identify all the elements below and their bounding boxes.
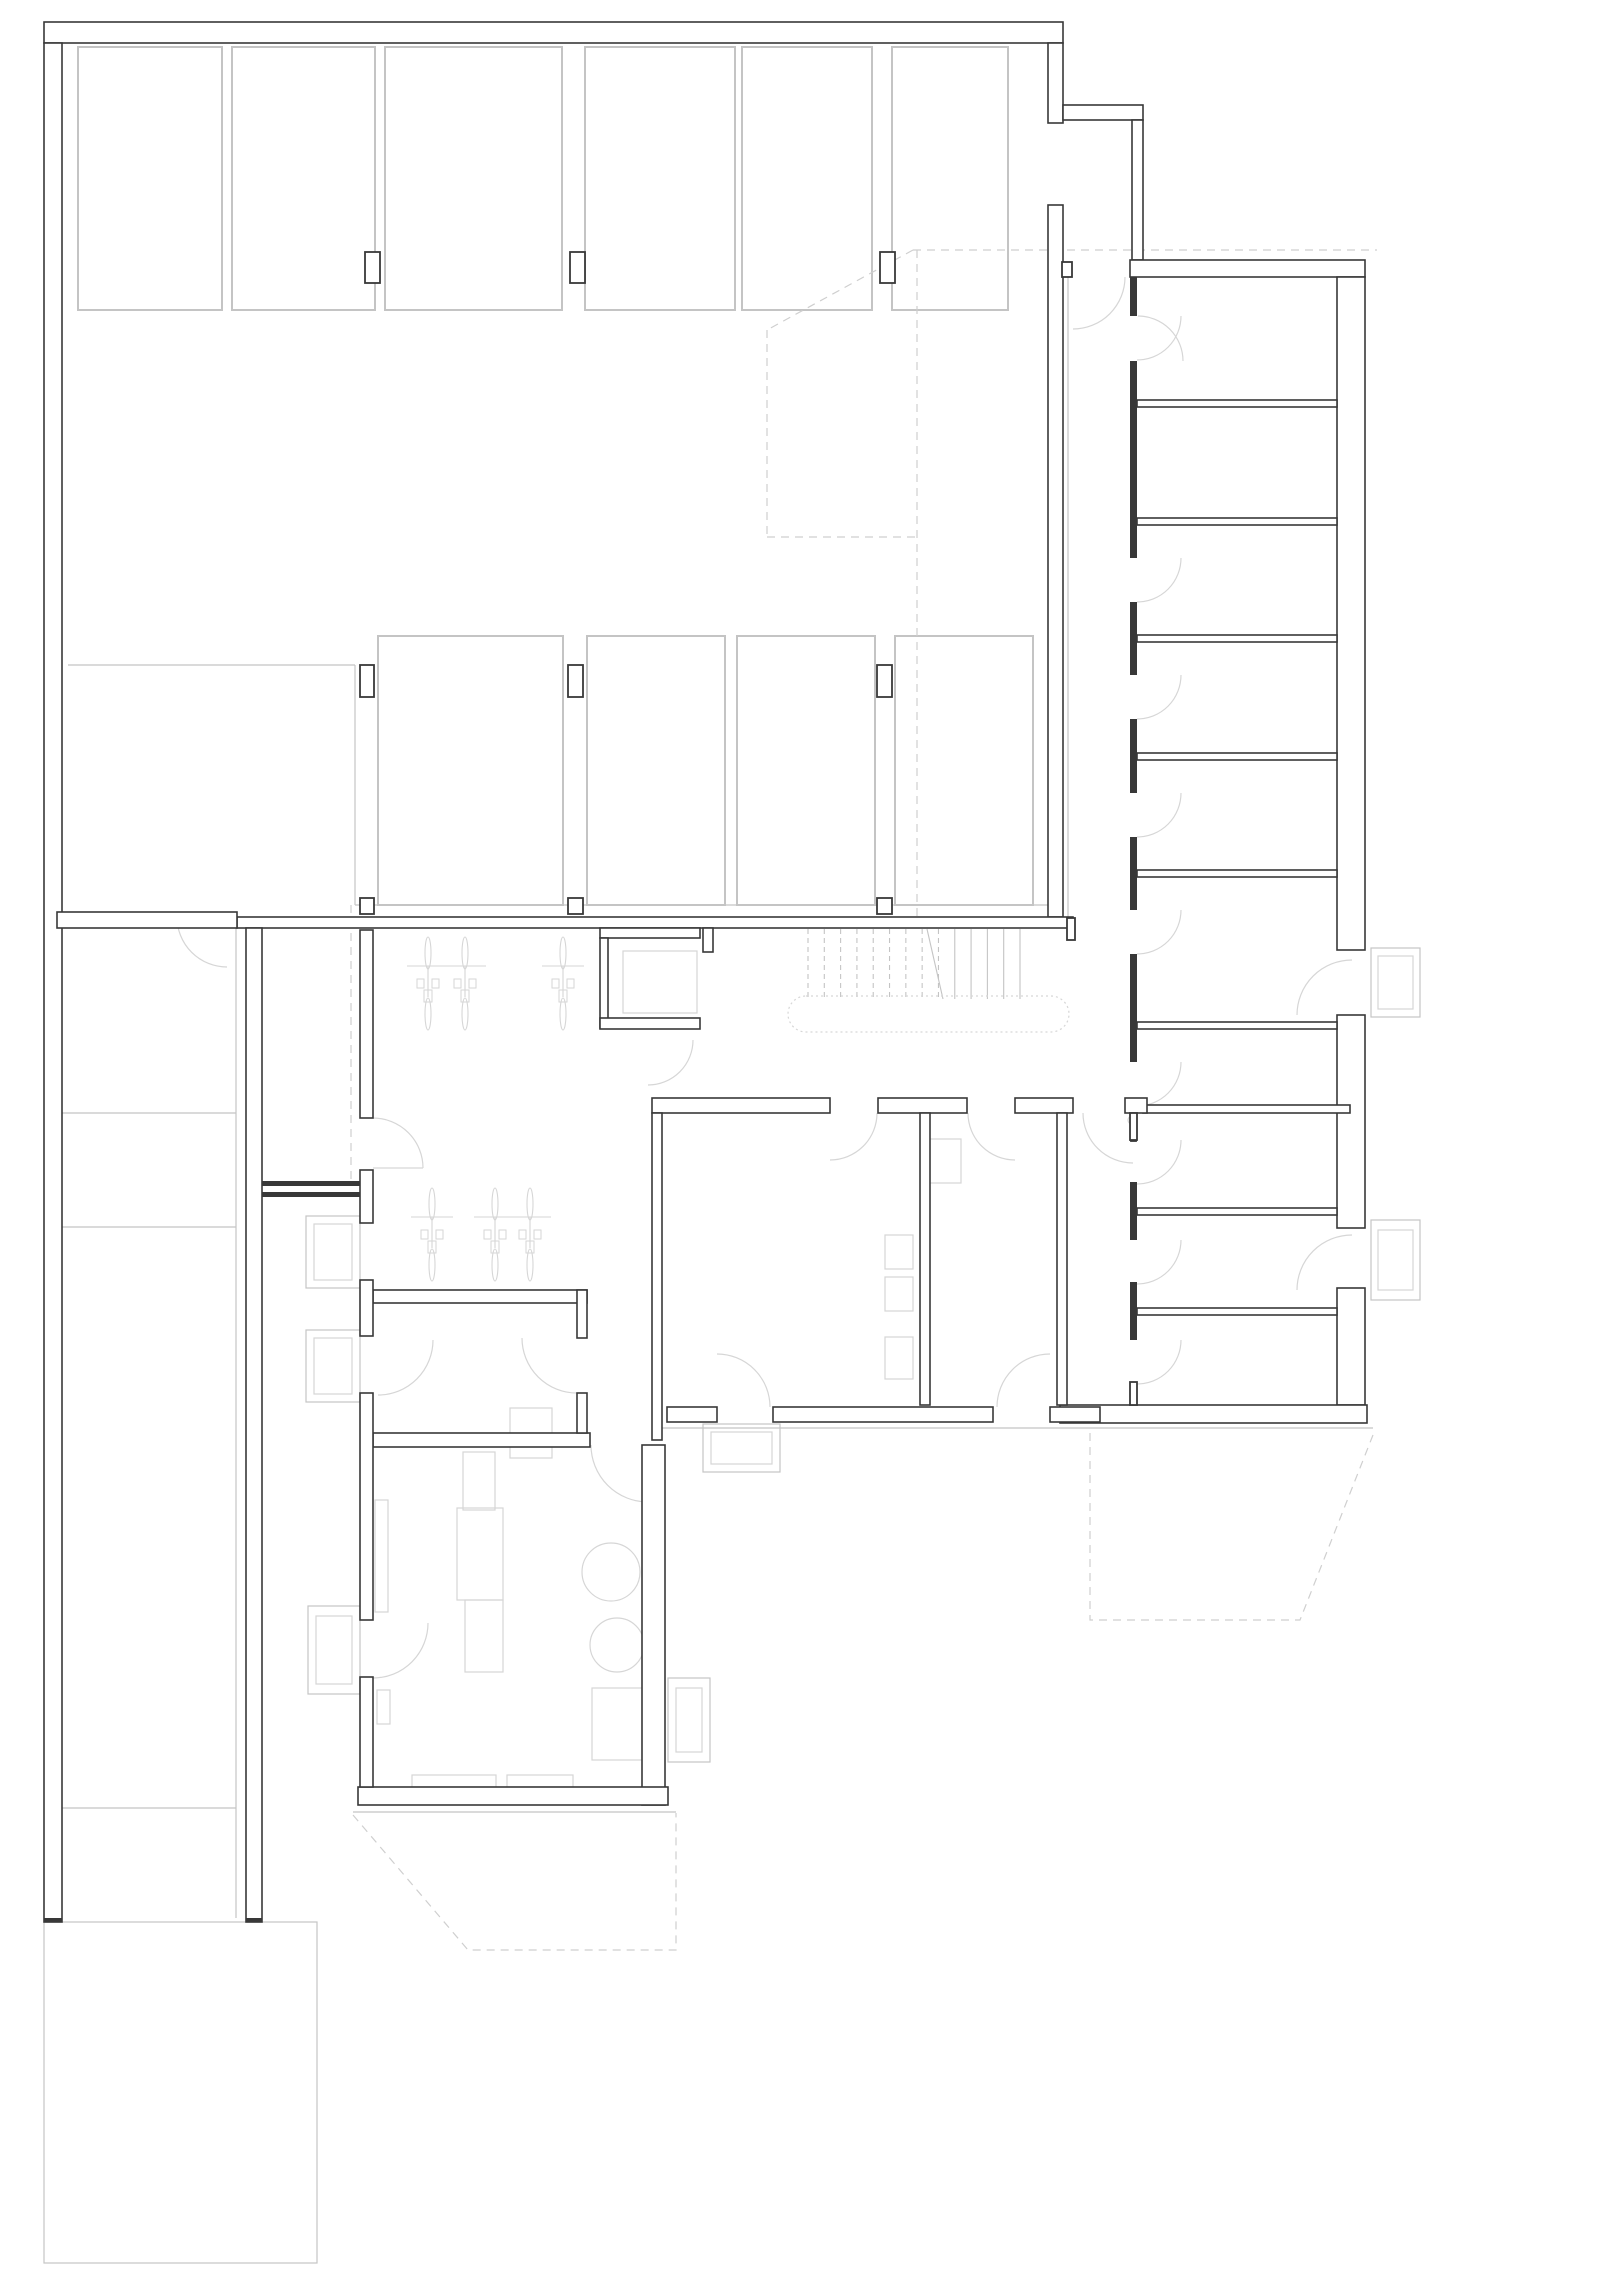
fixture (457, 1508, 503, 1600)
door-swing-arc (373, 1623, 428, 1678)
bike-pedal-right (499, 1230, 506, 1239)
fixture (314, 1224, 352, 1280)
wall (1015, 1098, 1073, 1113)
column (360, 898, 374, 914)
parking-stall (78, 47, 222, 310)
door-swing-arc (1073, 277, 1125, 329)
fixture (314, 1338, 352, 1394)
parking-stall (895, 636, 1033, 905)
fixture (463, 1452, 495, 1510)
bike-pedal-right (432, 979, 439, 988)
fixture (885, 1337, 913, 1379)
bike-rear-wheel (462, 998, 468, 1030)
parking-stall (232, 47, 375, 310)
bike-front-wheel (492, 1188, 498, 1220)
column (1130, 277, 1137, 316)
column (262, 1192, 360, 1197)
wall (652, 1113, 662, 1440)
column (365, 252, 380, 283)
door-swing-arc (1138, 316, 1183, 361)
column (1130, 1382, 1137, 1405)
door-swing-arc (717, 1354, 770, 1407)
door-swing-arc (1137, 1240, 1181, 1284)
fixture (377, 1690, 390, 1724)
wall (1132, 120, 1143, 260)
floor-plan-drawing (0, 0, 1600, 2285)
wall (358, 1787, 668, 1805)
wall (44, 43, 62, 1922)
door-swing-arc (1137, 316, 1181, 360)
double-walls-group (44, 22, 1367, 1922)
bike-pedal-left (454, 979, 461, 988)
stair-cut-line (927, 929, 943, 999)
column (44, 1918, 62, 1922)
fixture (1378, 1230, 1413, 1290)
fixture (465, 1600, 503, 1672)
column (1067, 918, 1075, 940)
wall (246, 928, 262, 1922)
bicycle-symbols-group (407, 937, 584, 1281)
column (1130, 837, 1137, 910)
door-swing-arc (648, 1040, 693, 1085)
staircase-group (788, 929, 1069, 1032)
fixture (676, 1688, 702, 1752)
door-swing-arc (1137, 1340, 1181, 1384)
wall (642, 1445, 665, 1805)
fixture (507, 1775, 573, 1787)
parking-stall (587, 636, 725, 905)
wall (57, 912, 237, 928)
bicycle-symbol (407, 937, 449, 1030)
parking-stall (737, 636, 875, 905)
wall (1137, 753, 1337, 760)
column (877, 898, 892, 914)
bike-pedal-right (567, 979, 574, 988)
wall (360, 1393, 373, 1620)
door-swing-arc (1137, 1140, 1181, 1184)
fixture (929, 1139, 961, 1183)
column (1130, 719, 1137, 793)
door-swing-arc (1137, 675, 1181, 719)
wall (1143, 1105, 1350, 1113)
fixture (885, 1277, 913, 1311)
wall (1137, 635, 1337, 642)
column (880, 252, 895, 283)
bike-pedal-left (519, 1230, 526, 1239)
wall (1337, 277, 1365, 950)
wall (600, 1018, 700, 1029)
wall (600, 938, 608, 1028)
wall (44, 22, 1063, 43)
wall (1050, 1407, 1100, 1422)
door-swing-arc (378, 1340, 433, 1395)
column (1130, 1282, 1137, 1340)
door-swing-arc (1083, 1113, 1133, 1163)
column (360, 665, 374, 697)
wall (577, 1393, 587, 1433)
fixture (316, 1616, 352, 1684)
wall (920, 1113, 930, 1405)
bike-pedal-right (469, 979, 476, 988)
wall (1137, 1022, 1337, 1029)
wall (703, 928, 713, 952)
dashed-outline (353, 1813, 676, 1950)
fixture (668, 1678, 710, 1762)
wall (360, 930, 373, 1118)
wall (1137, 1208, 1337, 1215)
column (568, 665, 583, 697)
fixture (885, 1235, 913, 1269)
wall (878, 1098, 967, 1113)
wall (360, 1280, 373, 1336)
bike-rear-wheel (527, 1249, 533, 1281)
door-swing-arc (1297, 1235, 1352, 1290)
fixture (623, 951, 697, 1013)
column (570, 252, 585, 283)
dashed-outlines-group (351, 250, 1377, 1950)
bike-pedal-right (534, 1230, 541, 1239)
parking-stall (385, 47, 562, 310)
parking-stalls-group (78, 47, 1033, 905)
column (1130, 361, 1137, 558)
bicycle-symbol (542, 937, 584, 1030)
door-swing-arc (522, 1338, 577, 1393)
door-swing-arc (1297, 960, 1352, 1015)
fixture (44, 1922, 317, 2263)
door-swings-group (177, 277, 1352, 1678)
wall (1337, 1015, 1365, 1228)
wall (1060, 1405, 1367, 1423)
dashed-outline (1090, 1433, 1373, 1620)
bike-front-wheel (425, 937, 431, 969)
bike-pedal-right (436, 1230, 443, 1239)
parking-stall (892, 47, 1008, 310)
door-swing-arc (968, 1113, 1015, 1160)
wall (667, 1407, 717, 1422)
bike-pedal-left (417, 979, 424, 988)
bike-front-wheel (527, 1188, 533, 1220)
column (246, 1918, 262, 1922)
wall (652, 1098, 830, 1113)
column (1130, 954, 1137, 1062)
wall (600, 928, 700, 938)
fixture (412, 1775, 496, 1787)
fixture (592, 1688, 642, 1760)
door-swing-arc (591, 1445, 648, 1502)
wall (360, 1677, 373, 1787)
wall (1137, 400, 1337, 407)
bike-pedal-left (484, 1230, 491, 1239)
column (1130, 1182, 1137, 1240)
wall (1048, 43, 1063, 123)
bike-rear-wheel (492, 1249, 498, 1281)
bicycle-symbol (474, 1188, 516, 1281)
door-swing-arc (1137, 793, 1181, 837)
wall (1137, 870, 1337, 877)
wall (1137, 518, 1337, 525)
column (1062, 262, 1072, 277)
door-swing-arc (373, 1118, 423, 1168)
floor-plan-page (0, 0, 1600, 2285)
bike-rear-wheel (425, 998, 431, 1030)
parking-stall (585, 47, 735, 310)
wall (360, 1170, 373, 1223)
wall (373, 1433, 590, 1447)
wall (373, 1290, 587, 1303)
stair-handrail-outline (788, 996, 1069, 1032)
door-swing-arc (830, 1113, 877, 1160)
bicycle-symbol (411, 1188, 453, 1281)
parking-stall (378, 636, 563, 905)
parking-stall (742, 47, 872, 310)
wall (1048, 205, 1063, 917)
wall (773, 1407, 993, 1422)
round-table (590, 1618, 644, 1672)
wall (1125, 1098, 1147, 1113)
wall (1137, 1308, 1337, 1315)
bicycle-symbol (444, 937, 486, 1030)
column (1130, 1113, 1137, 1140)
fixture (711, 1432, 772, 1464)
column (262, 1181, 360, 1186)
bicycle-symbol (509, 1188, 551, 1281)
fixture (1378, 956, 1413, 1009)
bike-rear-wheel (560, 998, 566, 1030)
bike-front-wheel (560, 937, 566, 969)
bike-pedal-left (421, 1230, 428, 1239)
column (877, 665, 892, 697)
door-swing-arc (1137, 558, 1181, 602)
column (1130, 602, 1137, 675)
door-swing-arc (997, 1354, 1050, 1407)
wall (577, 1290, 587, 1338)
wall (1063, 105, 1143, 120)
column (568, 898, 583, 914)
round-table (582, 1543, 640, 1601)
bike-front-wheel (429, 1188, 435, 1220)
bike-rear-wheel (429, 1249, 435, 1281)
wall (1337, 1288, 1365, 1405)
bike-pedal-left (552, 979, 559, 988)
wall (1057, 1113, 1067, 1405)
fixture (703, 1424, 780, 1472)
fixture (375, 1500, 388, 1612)
bike-front-wheel (462, 937, 468, 969)
wall (1130, 260, 1365, 277)
door-swing-arc (1137, 910, 1181, 954)
wall (237, 917, 1073, 928)
solid-walls-group (44, 252, 1137, 1922)
